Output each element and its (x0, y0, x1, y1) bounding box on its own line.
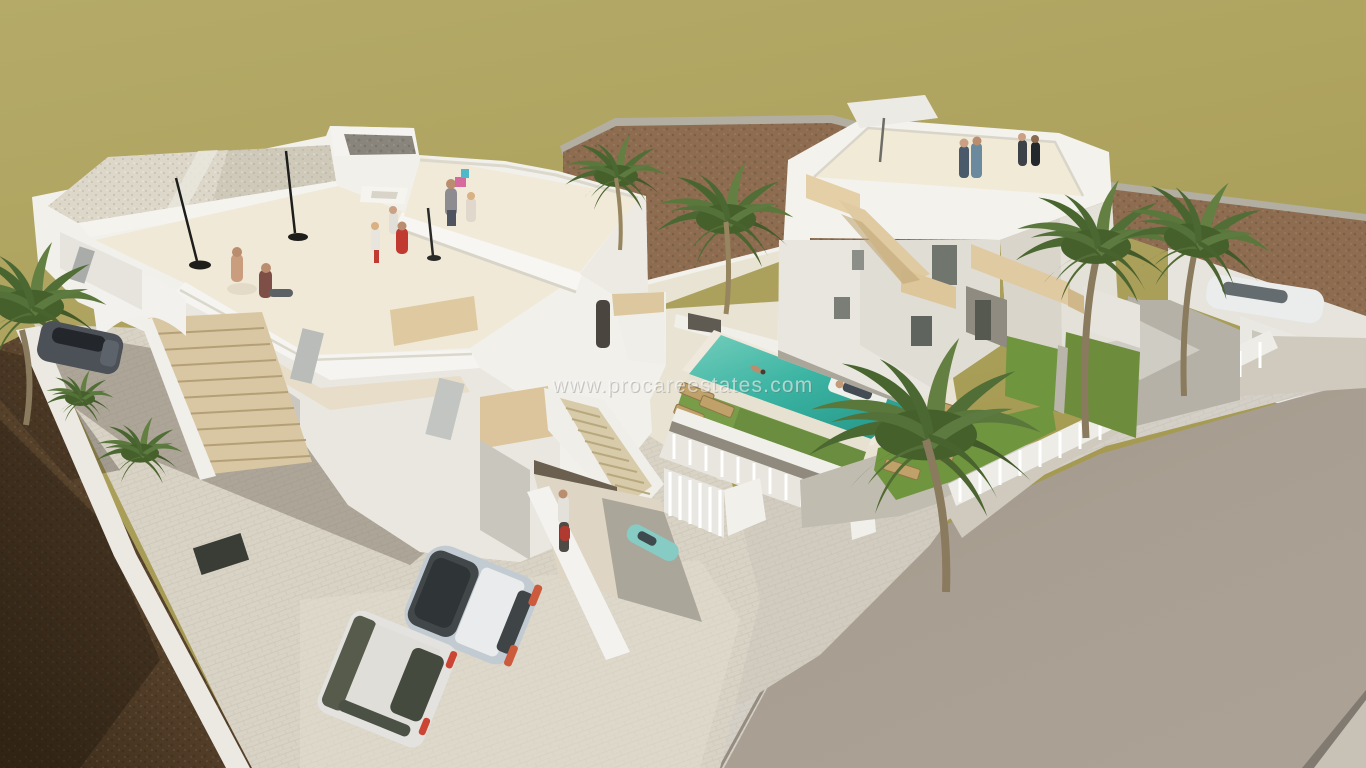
svg-text:www.procareestates.com: www.procareestates.com (552, 374, 814, 397)
